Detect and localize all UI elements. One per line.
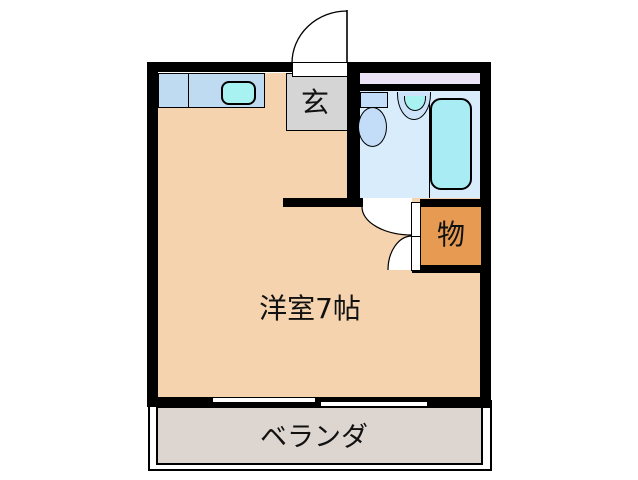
wall-under-window-strip: [360, 84, 480, 91]
veranda-label: ベランダ: [260, 424, 368, 451]
bathtub-icon: [430, 98, 472, 190]
wall-closet-bottom: [412, 265, 481, 273]
closet-label: 物: [437, 221, 465, 249]
wall-bottom: [147, 397, 491, 407]
kitchen-counter-divider: [188, 73, 189, 108]
wall-left: [147, 62, 158, 407]
bathroom-door-opening: [363, 198, 412, 207]
toilet-icon: [358, 107, 387, 147]
main-room-label: 洋室7帖: [259, 295, 361, 323]
sliding-window-icon: [320, 401, 428, 407]
wall-right: [480, 62, 491, 408]
entrance-door-opening: [292, 62, 348, 77]
sliding-window-icon: [212, 397, 316, 403]
floorplan-canvas: 玄 物 洋室7帖 ベランダ: [0, 0, 638, 480]
wall-partition-stub: [283, 198, 363, 207]
sliding-window-meeting-rail: [318, 398, 319, 407]
entrance-label: 玄: [301, 89, 329, 117]
closet-door-leaf-divider: [411, 236, 421, 237]
toilet-tank-icon: [360, 92, 388, 108]
kitchen-sink-icon: [221, 81, 256, 105]
wall-closet-top: [420, 199, 481, 207]
entrance-door-swing-icon: [292, 10, 347, 63]
